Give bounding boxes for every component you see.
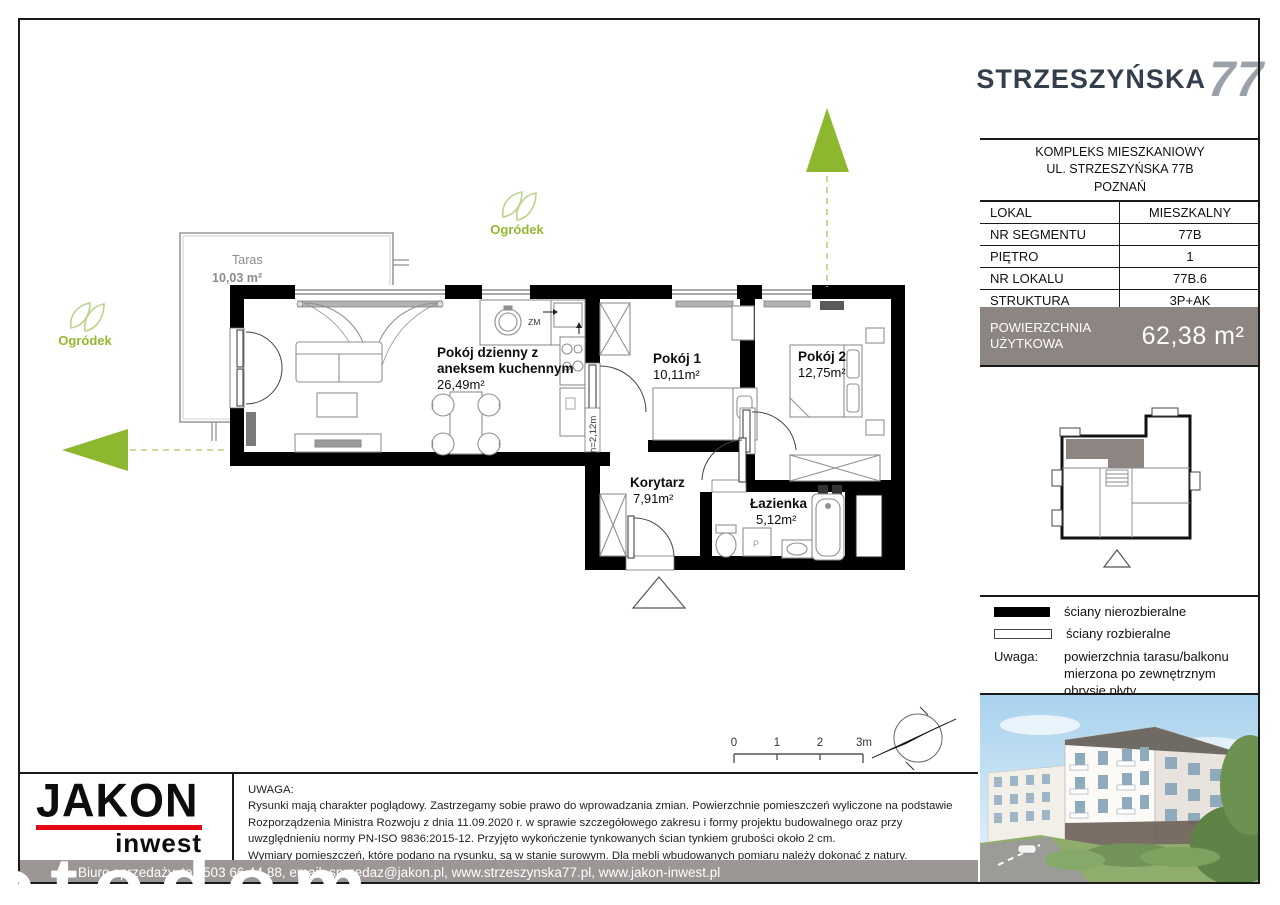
watermark: otodom — [0, 842, 678, 905]
apartment-card-page: Taras 10,03 m² — [0, 0, 1280, 905]
page-frame — [18, 18, 1260, 884]
